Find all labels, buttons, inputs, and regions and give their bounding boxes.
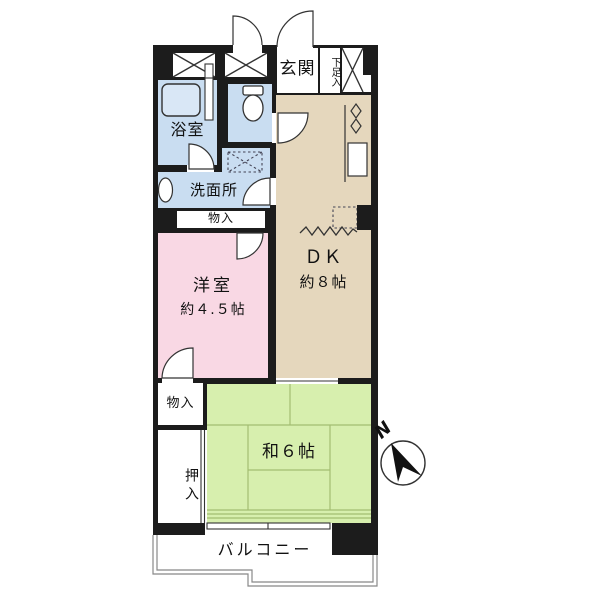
compass-needle xyxy=(391,443,422,482)
oshiire-label: 押入 xyxy=(166,450,198,522)
compass-icon: N xyxy=(371,418,425,485)
meter-box-center xyxy=(225,53,267,77)
meter-box-right xyxy=(342,48,363,92)
western-storage-door-opening xyxy=(162,378,193,383)
dk-size: 約８帖 xyxy=(276,275,371,291)
dk-washitsu-partition-opening xyxy=(276,378,338,384)
balcony-label: バルコニー xyxy=(153,542,377,559)
western-room-size: 約４.５帖 xyxy=(158,303,268,318)
entrance-door-arc xyxy=(277,11,313,47)
balcony-window-opening xyxy=(205,523,332,535)
toilet-room-floor xyxy=(228,84,272,142)
washroom-floor-upper xyxy=(222,148,270,172)
wall-notch xyxy=(363,75,371,92)
japanese-room-label: 和６帖 xyxy=(207,444,371,462)
meter-box-left xyxy=(173,53,215,77)
floor-plan: N 玄関 下足入 浴室 洗面所 物入 洋室 約４.５帖 ＤＫ 約８帖 和６帖 物… xyxy=(0,0,600,600)
dk-floor xyxy=(276,95,371,378)
bathroom-label: 浴室 xyxy=(158,122,217,139)
hall-storage-label: 物入 xyxy=(177,212,265,225)
bathroom-door-opening xyxy=(187,165,214,172)
bedroom-storage-label: 物入 xyxy=(158,397,203,411)
service-door-arc xyxy=(233,16,262,45)
door-opening-service xyxy=(233,45,262,53)
washroom-door-opening xyxy=(270,178,276,205)
toilet-door-opening xyxy=(272,113,276,143)
washroom-label: 洗面所 xyxy=(158,183,270,199)
western-room-label: 洋室 xyxy=(158,278,268,296)
genkan-label: 玄関 xyxy=(277,61,318,79)
dk-label: ＤＫ xyxy=(276,249,371,268)
shoe-cabinet-label: 下足入 xyxy=(321,52,339,92)
